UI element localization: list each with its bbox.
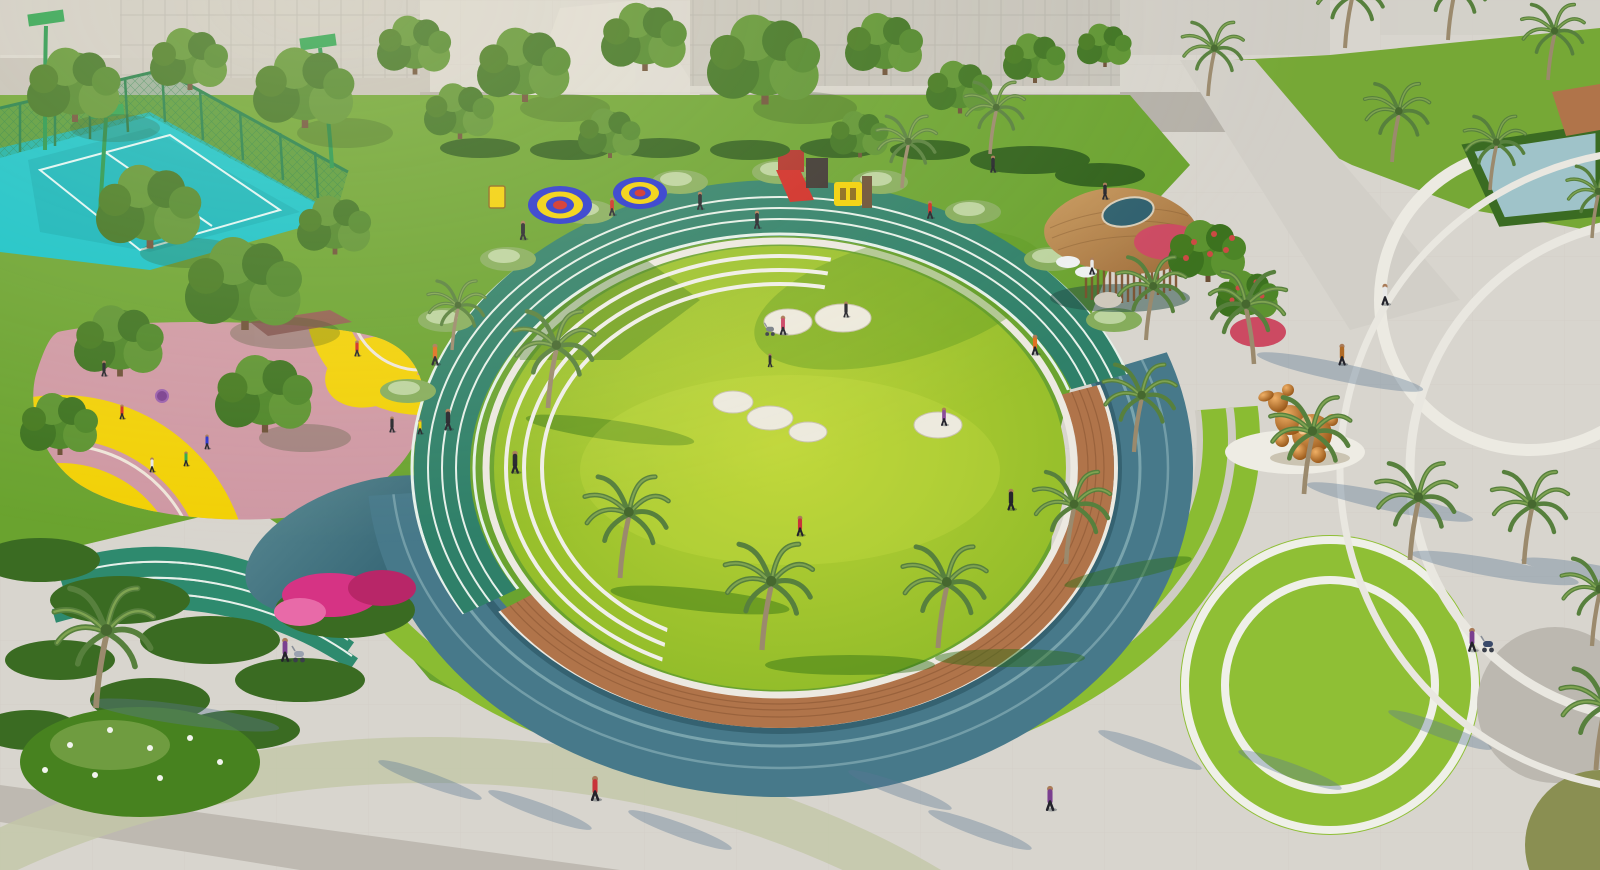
bougainvillea-left xyxy=(274,570,416,638)
lawn-sun-highlight xyxy=(580,375,1000,565)
render-canvas xyxy=(0,0,1600,870)
spinner-toy xyxy=(156,390,168,402)
lounge-chair xyxy=(1056,256,1080,268)
park-render xyxy=(0,0,1600,870)
yellow-sign xyxy=(489,186,505,208)
